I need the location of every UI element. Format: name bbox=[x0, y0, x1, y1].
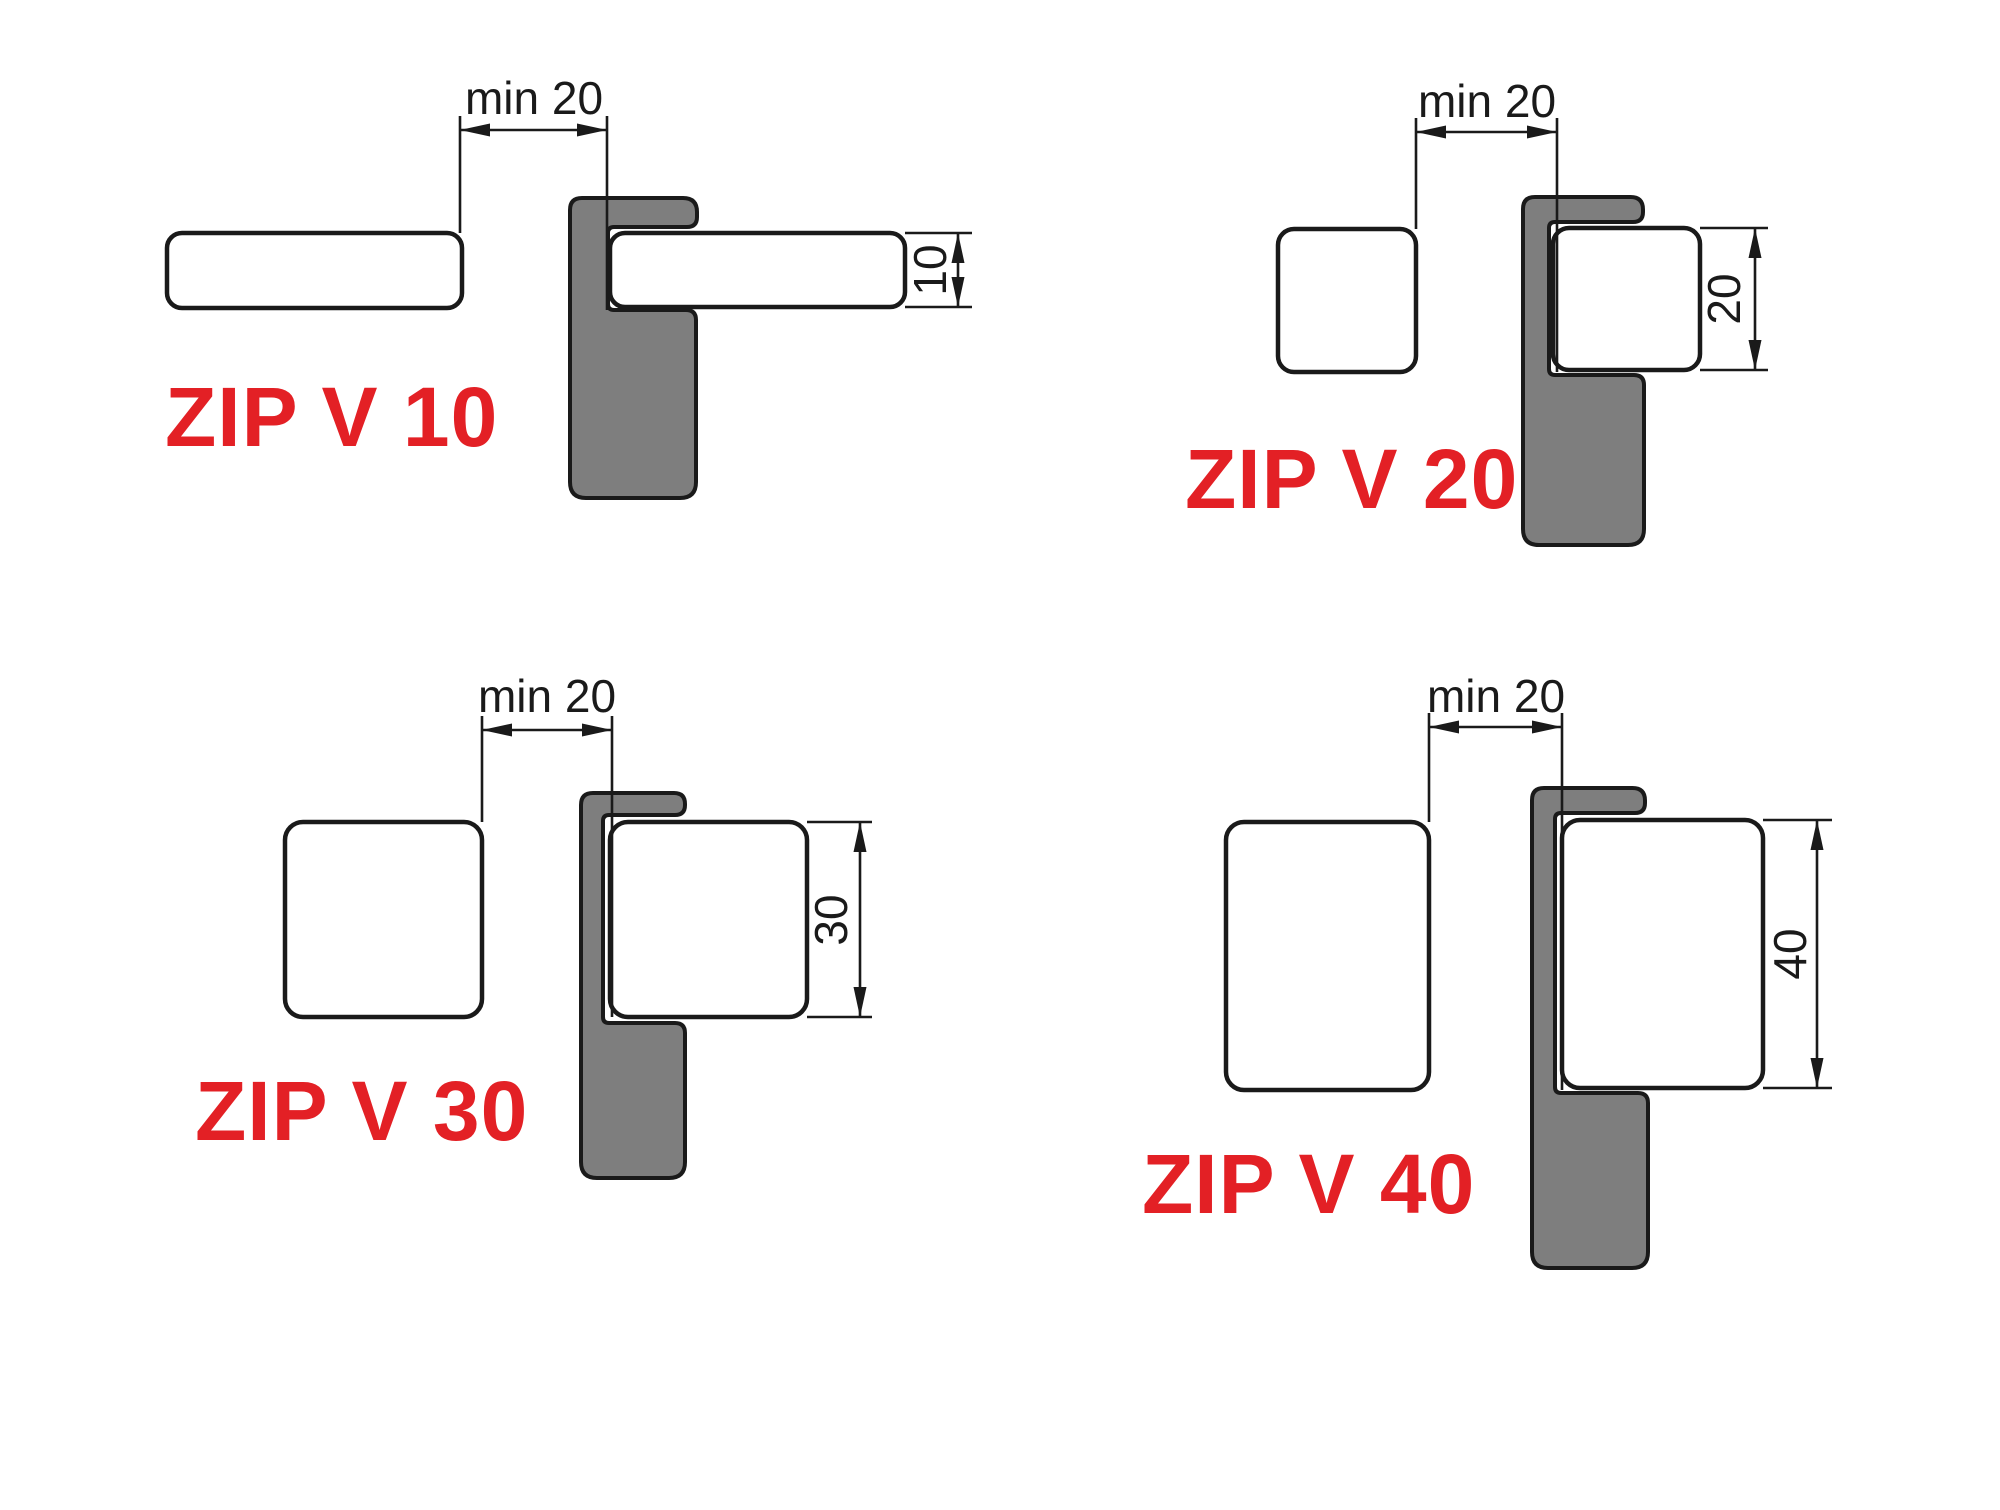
product-label-zip-v-30: ZIP V 30 bbox=[195, 1064, 528, 1158]
dimension-arrow-left bbox=[1416, 126, 1446, 139]
dimension-arrow-down bbox=[854, 987, 867, 1017]
height-dimension-text: 10 bbox=[904, 244, 956, 295]
dimension-arrow-left bbox=[482, 724, 512, 737]
dimension-arrow-down bbox=[1811, 1058, 1824, 1088]
product-label-zip-v-40: ZIP V 40 bbox=[1142, 1137, 1475, 1231]
gap-dimension-text: min 20 bbox=[465, 72, 603, 124]
diagram-zip-v-20: min 20 20 ZIP V 20 bbox=[1185, 75, 1768, 545]
page: min 20 10 ZIP V 10 min 20 20 ZIP V 20 mi… bbox=[0, 0, 2000, 1510]
product-label-zip-v-10: ZIP V 10 bbox=[165, 370, 498, 464]
diagram-zip-v-30: min 20 30 ZIP V 30 bbox=[195, 670, 872, 1178]
right-panel bbox=[610, 233, 905, 307]
dimension-arrow-down bbox=[1749, 340, 1762, 370]
product-label-zip-v-20: ZIP V 20 bbox=[1185, 432, 1518, 526]
dimension-arrow-left bbox=[1429, 721, 1459, 734]
dimension-arrow-right bbox=[1532, 721, 1562, 734]
right-panel bbox=[610, 822, 807, 1017]
height-dimension-text: 40 bbox=[1764, 928, 1816, 979]
gap-dimension-text: min 20 bbox=[1418, 75, 1556, 127]
dimension-arrow-right bbox=[582, 724, 612, 737]
gap-dimension-text: min 20 bbox=[478, 670, 616, 722]
dimension-arrow-up bbox=[1749, 228, 1762, 258]
height-dimension-text: 20 bbox=[1698, 273, 1750, 324]
right-panel bbox=[1562, 820, 1763, 1088]
left-panel bbox=[167, 233, 462, 308]
dimension-arrow-up bbox=[1811, 820, 1824, 850]
dimension-arrow-up bbox=[854, 822, 867, 852]
diagram-zip-v-40: min 20 40 ZIP V 40 bbox=[1142, 670, 1832, 1268]
right-panel bbox=[1553, 228, 1700, 370]
left-panel bbox=[1278, 229, 1416, 372]
drawing-canvas: min 20 10 ZIP V 10 min 20 20 ZIP V 20 mi… bbox=[0, 0, 2000, 1510]
dimension-arrow-right bbox=[577, 124, 607, 137]
left-panel bbox=[285, 822, 482, 1017]
left-panel bbox=[1226, 822, 1429, 1090]
gap-dimension-text: min 20 bbox=[1427, 670, 1565, 722]
diagram-zip-v-10: min 20 10 ZIP V 10 bbox=[165, 72, 972, 498]
height-dimension-text: 30 bbox=[805, 894, 857, 945]
dimension-arrow-left bbox=[460, 124, 490, 137]
dimension-arrow-right bbox=[1527, 126, 1557, 139]
